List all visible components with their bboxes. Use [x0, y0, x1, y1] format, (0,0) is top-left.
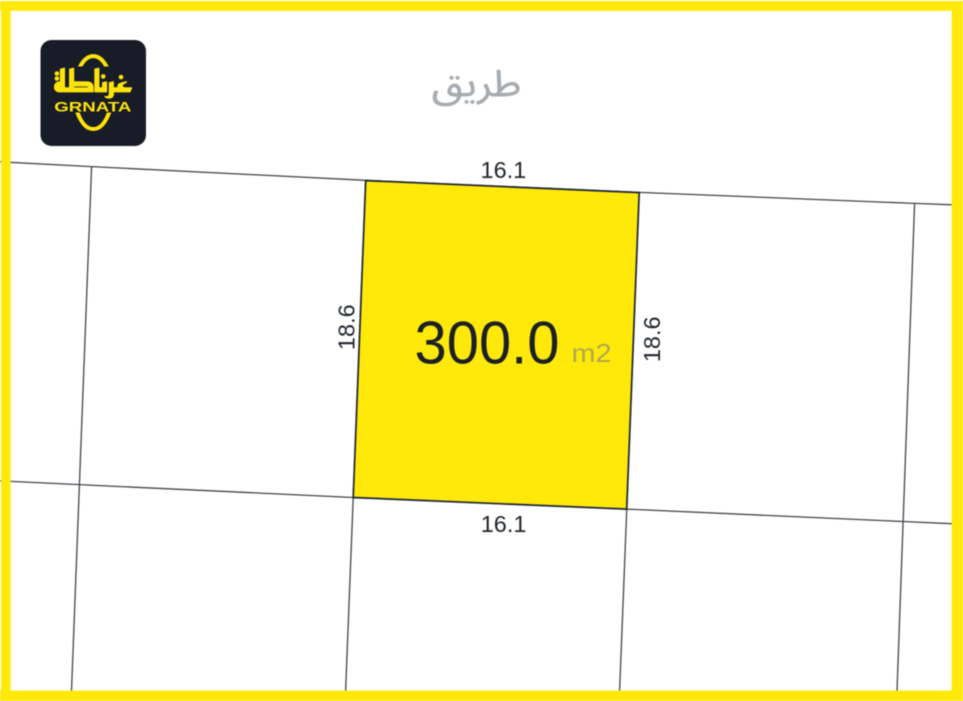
svg-text:m2: m2	[572, 338, 612, 368]
svg-text:GRNATA: GRNATA	[54, 99, 131, 115]
svg-text:18.6: 18.6	[334, 304, 360, 350]
svg-text:16.1: 16.1	[481, 511, 527, 537]
svg-text:18.6: 18.6	[639, 316, 665, 362]
svg-text:16.1: 16.1	[481, 157, 527, 183]
svg-text:300.0: 300.0	[415, 308, 560, 376]
